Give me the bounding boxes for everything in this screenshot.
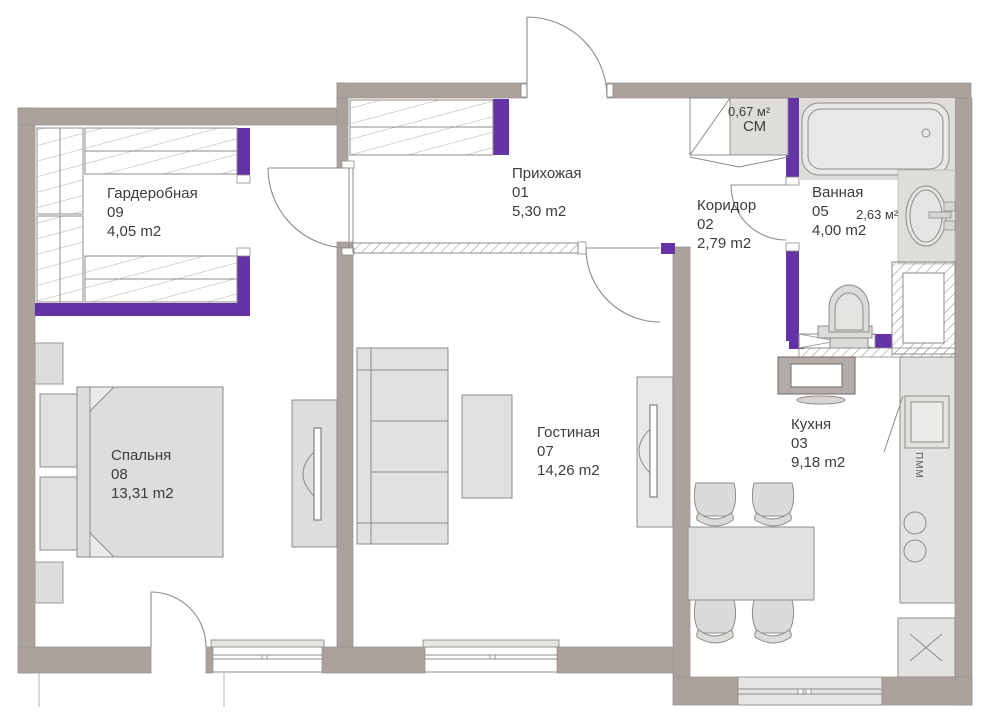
room-area: 13,31 m2 <box>111 484 174 503</box>
living-window <box>423 640 559 672</box>
wardrobe-wall-right-bottom <box>237 256 250 310</box>
kitchen-sink <box>898 618 955 677</box>
bathtub <box>802 103 949 175</box>
floor-plan: Гардеробная 09 4,05 m2 Прихожая 01 5,30 … <box>0 0 990 726</box>
kitchen-window <box>738 677 882 705</box>
nightstand-bottom <box>40 477 77 550</box>
wall-bottom-1 <box>18 647 151 673</box>
room-number: 08 <box>111 465 174 484</box>
hatched-partition <box>353 243 578 253</box>
hallway-closet <box>350 100 493 155</box>
living-room-door <box>586 248 660 322</box>
living-tv-unit <box>637 377 673 527</box>
balcony-edge-lines <box>39 673 224 707</box>
wall-right <box>955 98 972 705</box>
room-name: Прихожая <box>512 164 582 183</box>
label-living: Гостиная 07 14,26 m2 <box>537 423 600 480</box>
alcove-door <box>268 168 348 248</box>
tv-panel <box>314 428 321 520</box>
room-number: 09 <box>107 203 198 222</box>
wardrobe-wall-bottom <box>35 303 250 316</box>
room-name: Спальня <box>111 446 174 465</box>
room-area: 4,00 m2 <box>812 221 866 240</box>
balcony-door <box>151 592 206 647</box>
wall-top-hallway <box>337 83 527 98</box>
room-name: Гардеробная <box>107 184 198 203</box>
chair <box>694 600 735 643</box>
kitchen-counter <box>900 357 955 603</box>
oven <box>884 396 949 452</box>
floor-plan-drawing <box>0 0 990 726</box>
bedroom-window <box>211 640 324 672</box>
wall-hallway-left <box>337 98 348 168</box>
label-corridor: Коридор 02 2,79 m2 <box>697 196 756 253</box>
chair <box>752 483 793 526</box>
wall-bedroom-living <box>337 242 353 647</box>
room-number: 03 <box>791 434 845 453</box>
windows <box>39 640 882 707</box>
dishwasher-label: ПММ <box>913 452 924 479</box>
label-kitchen: Кухня 03 9,18 m2 <box>791 415 845 472</box>
closet-door-diagonal <box>690 98 730 155</box>
wall-living-kitchen <box>673 247 690 677</box>
room-name: Коридор <box>697 196 756 215</box>
label-bedroom: Спальня 08 13,31 m2 <box>111 446 174 503</box>
label-hallway: Прихожая 01 5,30 m2 <box>512 164 582 221</box>
room-number: 01 <box>512 183 582 202</box>
sm-closet-area: 0,67 м² <box>728 104 770 119</box>
living-furniture <box>357 348 673 544</box>
bathroom-wall-top <box>786 165 799 177</box>
thin-partition <box>349 168 353 248</box>
entrance-door <box>527 17 607 97</box>
bedroom-tv-unit <box>292 400 337 547</box>
room-area: 9,18 m2 <box>791 453 845 472</box>
dining-table <box>688 527 814 600</box>
wall-top-wardrobe <box>18 108 348 125</box>
sm-closet-label: СМ <box>743 118 766 135</box>
room-name: Кухня <box>791 415 845 434</box>
kitchen-tv <box>778 357 855 404</box>
wall-bottom-3 <box>322 647 425 673</box>
wall-bottom-4 <box>557 647 673 673</box>
wall-bottom-kitchen-2 <box>882 677 972 705</box>
folding-door-symbol <box>690 157 788 167</box>
room-area: 5,30 m2 <box>512 202 582 221</box>
room-number: 07 <box>537 442 600 461</box>
room-name: Ванная <box>812 183 866 202</box>
wall-pilaster-top <box>35 343 63 384</box>
room-area: 2,79 m2 <box>697 234 756 253</box>
chair <box>694 483 735 526</box>
nightstand-top <box>40 394 77 467</box>
chair <box>752 600 793 643</box>
wall-pilaster-bottom <box>35 562 63 603</box>
hall-closet-cap <box>493 99 509 155</box>
label-wardrobe: Гардеробная 09 4,05 m2 <box>107 184 198 241</box>
bedroom-furniture <box>35 343 337 603</box>
coffee-table <box>462 395 512 498</box>
ventilation-shaft <box>892 262 955 354</box>
wall-bottom-kitchen-1 <box>673 677 738 705</box>
room-number: 02 <box>697 215 756 234</box>
kitchen-furniture <box>688 357 955 677</box>
tv-panel <box>650 405 657 497</box>
living-door-cap <box>661 243 675 254</box>
room-area: 14,26 m2 <box>537 461 600 480</box>
sofa <box>357 348 448 544</box>
room-name: Гостиная <box>537 423 600 442</box>
bath-zone-area: 2,63 м² <box>856 207 898 222</box>
wardrobe-wall-right-top <box>237 128 250 175</box>
bathroom-wall-bottom <box>786 251 799 341</box>
wall-bottom-2 <box>206 647 213 673</box>
xbox-cap-right <box>875 334 892 348</box>
room-area: 4,05 m2 <box>107 222 198 241</box>
wall-left <box>18 108 35 673</box>
wall-top-right <box>607 83 971 98</box>
